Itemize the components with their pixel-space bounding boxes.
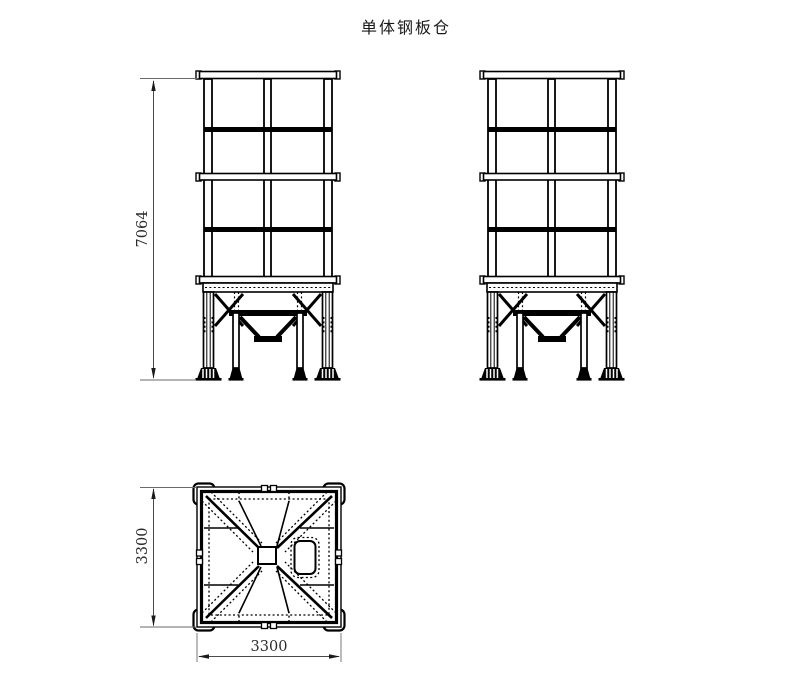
drawing-canvas: 单体钢板仓 [0,0,812,682]
manhole [291,538,319,578]
drawing-title: 单体钢板仓 [361,18,451,37]
discharge-outlet [258,547,276,564]
front-elevation-view [196,71,341,381]
dimension-label-depth: 3300 [135,528,151,565]
dimension-label-width: 3300 [251,639,288,655]
dimension-plan-width: 3300 [197,633,341,662]
drawing-sheet: 单体钢板仓 [0,0,812,682]
plan-view [194,484,345,631]
dimension-label-height: 7064 [135,211,151,248]
dimension-overall-height: 7064 [135,79,198,381]
dimension-plan-depth: 3300 [135,488,196,628]
side-elevation-view [480,71,625,381]
